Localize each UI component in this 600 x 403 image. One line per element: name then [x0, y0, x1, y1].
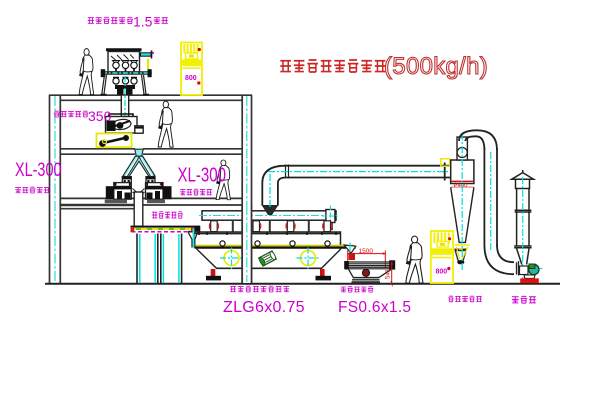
svg-text:XL-300: XL-300 [178, 164, 227, 187]
svg-text:XL-300: XL-300 [15, 160, 62, 181]
svg-text:ZLG6x0.75: ZLG6x0.75 [223, 299, 305, 316]
svg-text:350: 350 [88, 108, 112, 124]
svg-text:FS0.6x1.5: FS0.6x1.5 [338, 299, 411, 316]
svg-text:541: 541 [386, 268, 392, 279]
svg-text:800: 800 [185, 75, 197, 82]
svg-text:(500kg/h): (500kg/h) [384, 53, 488, 80]
svg-text:1.5: 1.5 [133, 14, 153, 30]
svg-text:800: 800 [436, 269, 448, 276]
svg-text:1500: 1500 [359, 248, 374, 255]
